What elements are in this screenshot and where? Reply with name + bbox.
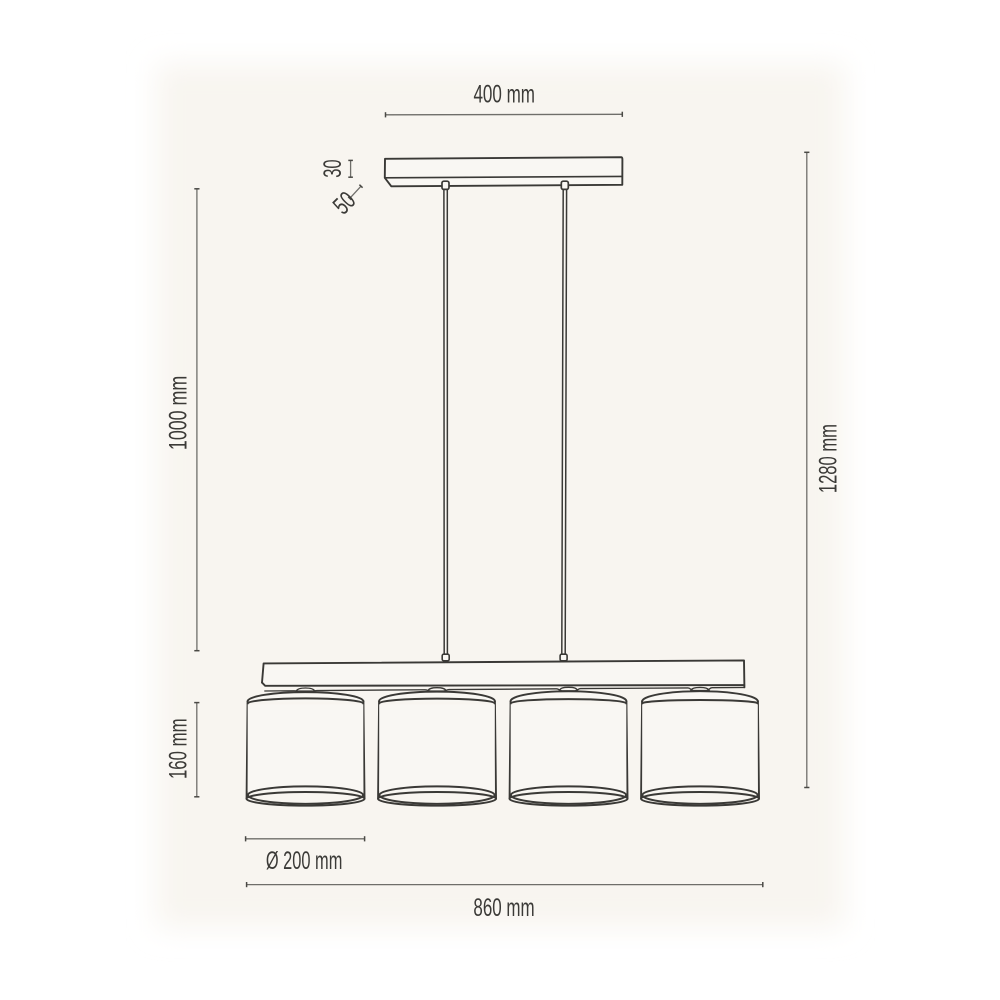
- svg-text:30: 30: [319, 159, 347, 177]
- svg-text:1000 mm: 1000 mm: [164, 376, 192, 450]
- svg-text:400 mm: 400 mm: [473, 81, 535, 109]
- svg-text:160 mm: 160 mm: [164, 718, 192, 779]
- svg-text:1280 mm: 1280 mm: [814, 424, 842, 493]
- svg-text:Ø 200 mm: Ø 200 mm: [266, 847, 343, 875]
- svg-text:860 mm: 860 mm: [473, 894, 534, 922]
